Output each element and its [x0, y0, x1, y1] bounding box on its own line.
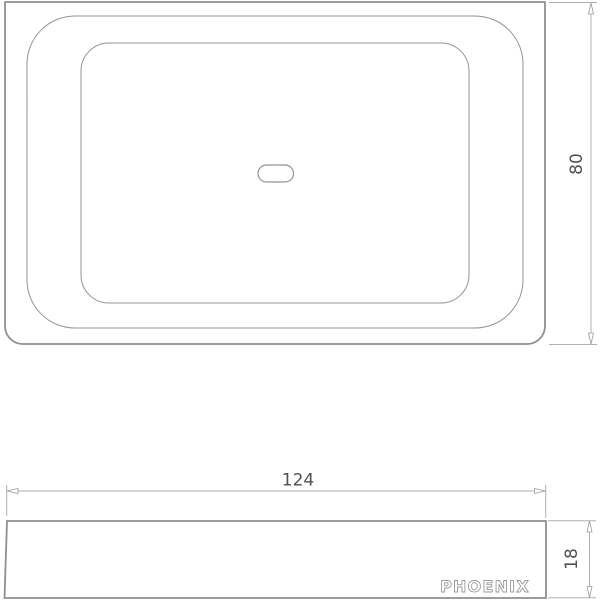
arrow-up-icon [589, 3, 594, 14]
plan-basin-edge [81, 43, 469, 303]
plan-outer-edge [5, 2, 545, 344]
brand-logo-text: PHOENIX [440, 577, 530, 596]
dim-width-value: 124 [282, 471, 314, 491]
dim-depth-value: 18 [562, 548, 582, 570]
technical-drawing-sheet: PHOENIX 80 124 18 [0, 0, 600, 600]
dim-width [7, 485, 546, 518]
dim-height-value: 80 [567, 153, 587, 175]
arrow-left-icon [7, 489, 18, 494]
arrow-down-icon [587, 587, 592, 598]
arrow-up-icon [587, 521, 592, 532]
drawing-svg: PHOENIX 80 124 18 [0, 0, 600, 600]
drain-slot [258, 165, 294, 182]
arrow-down-icon [589, 333, 594, 344]
arrow-right-icon [535, 489, 546, 494]
plan-view [5, 2, 545, 344]
plan-rim-edge [27, 16, 523, 328]
